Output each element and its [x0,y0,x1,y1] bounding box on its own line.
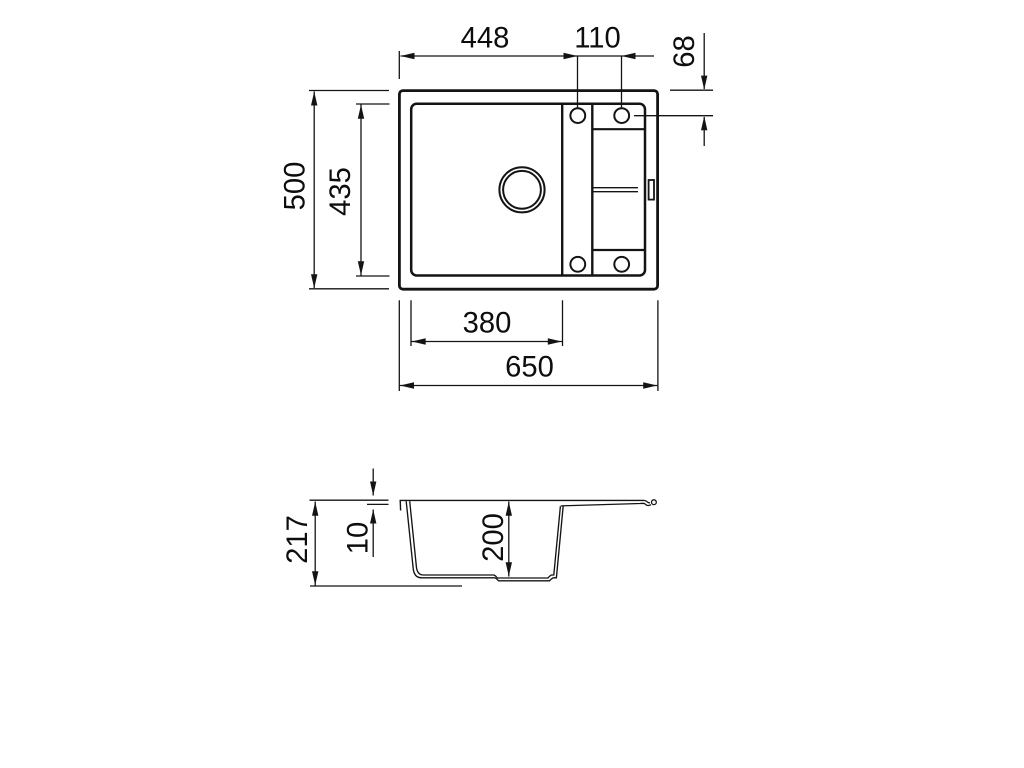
svg-text:68: 68 [669,35,701,67]
svg-text:500: 500 [280,162,312,211]
svg-text:650: 650 [505,352,554,384]
svg-text:380: 380 [463,308,512,340]
svg-text:448: 448 [461,23,510,55]
svg-text:10: 10 [343,522,375,554]
svg-text:217: 217 [282,515,314,564]
svg-text:200: 200 [478,513,510,562]
svg-text:435: 435 [325,167,357,216]
svg-text:110: 110 [574,23,621,55]
